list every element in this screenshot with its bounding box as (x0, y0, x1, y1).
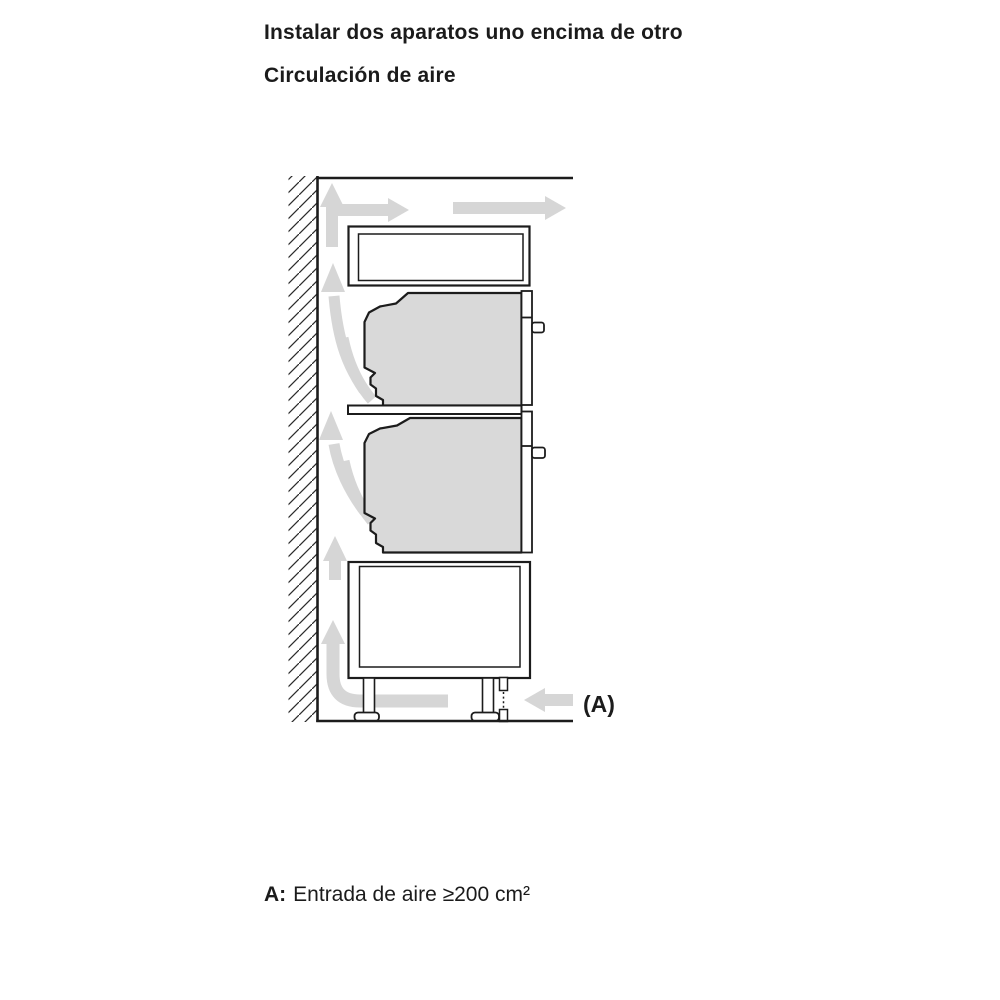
cabinet-leg-left (364, 678, 375, 713)
upper-oven-door-pin (532, 323, 544, 333)
lower-oven-front-panel (522, 412, 546, 553)
upper-compartment-outer (349, 227, 530, 286)
base-cabinet-outer (349, 562, 531, 678)
intermediate-shelf (348, 406, 522, 415)
airflow-elbow-arrow-head (321, 620, 345, 644)
airflow-up-arrow-middle (323, 536, 347, 580)
airflow-curve-lower-head (319, 411, 343, 440)
airflow-right-arrow-short (336, 198, 409, 222)
air-inlet-marker (500, 678, 508, 722)
cabinet-leg-right (483, 678, 494, 713)
lower-oven-door-pin (532, 448, 545, 459)
air-inlet-arrow (524, 688, 573, 712)
upper-oven-front-panel (522, 291, 545, 405)
caption-text: Entrada de aire ≥200 cm² (293, 883, 530, 906)
airflow-curve-upper-head (321, 263, 345, 292)
airflow-right-arrow-long (453, 196, 566, 220)
figure-caption: A:Entrada de aire ≥200 cm² (264, 883, 530, 907)
lower-oven-body (365, 418, 522, 553)
air-inlet-marker-top (500, 678, 508, 691)
label-a: (A) (583, 691, 615, 717)
wall-hatching (289, 176, 318, 722)
upper-oven-body (365, 293, 522, 406)
cabinet-assembly (348, 227, 545, 722)
installation-diagram: (A) (0, 0, 1000, 1000)
caption-label: A: (264, 883, 286, 906)
